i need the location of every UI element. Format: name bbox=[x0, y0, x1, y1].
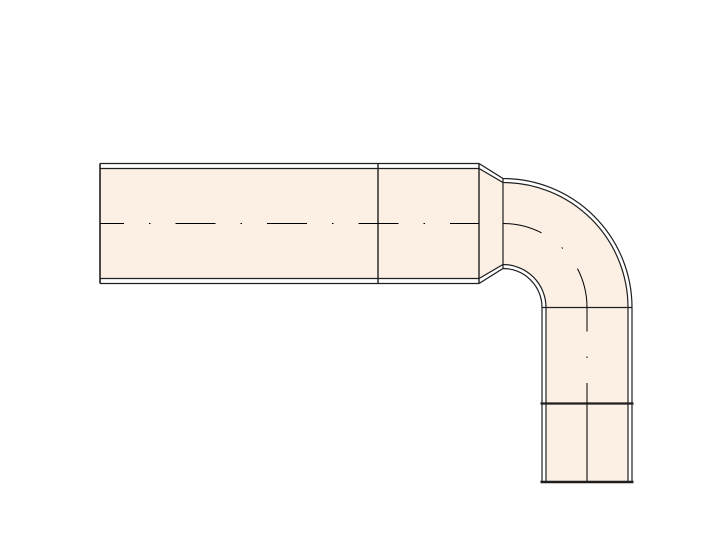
outer-wall-bottom-outline bbox=[100, 269, 542, 483]
pipe-bore-fill bbox=[100, 169, 628, 483]
drawing-canvas bbox=[0, 0, 713, 540]
inner-wall-bottom-outline bbox=[100, 265, 546, 483]
pipe-elbow-drawing bbox=[0, 0, 713, 540]
